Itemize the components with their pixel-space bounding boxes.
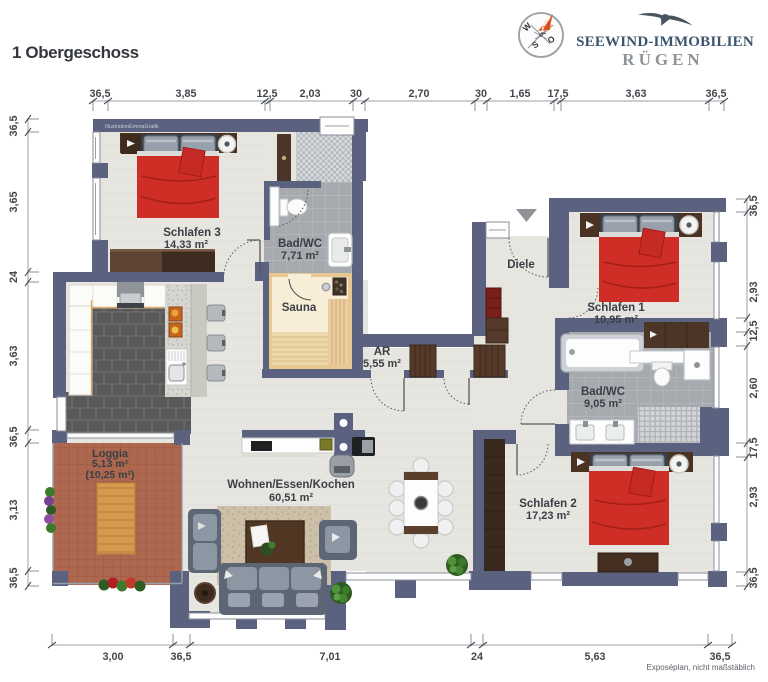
svg-text:36,5: 36,5 — [705, 88, 726, 100]
svg-text:12,5: 12,5 — [748, 320, 760, 341]
svg-text:17,5: 17,5 — [547, 88, 568, 100]
svg-text:36,5: 36,5 — [8, 115, 20, 136]
svg-text:RÜGEN: RÜGEN — [622, 50, 703, 69]
svg-text:7,01: 7,01 — [319, 651, 340, 663]
svg-text:2,60: 2,60 — [748, 377, 760, 398]
svg-text:3,63: 3,63 — [625, 88, 646, 100]
svg-text:Diele: Diele — [507, 259, 535, 271]
svg-text:9,05 m²: 9,05 m² — [584, 398, 622, 410]
svg-text:24: 24 — [8, 271, 20, 283]
svg-text:Schlafen 1: Schlafen 1 — [587, 302, 645, 314]
svg-text:36,5: 36,5 — [89, 88, 110, 100]
svg-text:Sauna: Sauna — [282, 302, 317, 314]
svg-text:3,85: 3,85 — [175, 88, 196, 100]
svg-text:30: 30 — [475, 88, 487, 100]
svg-text:2,03: 2,03 — [299, 88, 320, 100]
svg-text:7,71 m²: 7,71 m² — [281, 250, 319, 262]
svg-text:3,65: 3,65 — [8, 191, 20, 212]
svg-text:Bad/WC: Bad/WC — [278, 238, 322, 250]
svg-text:AR: AR — [374, 346, 391, 358]
svg-text:1 Obergeschoss: 1 Obergeschoss — [12, 43, 139, 62]
svg-text:36,5: 36,5 — [8, 426, 20, 447]
svg-text:36,5: 36,5 — [170, 651, 191, 663]
svg-text:24: 24 — [471, 651, 483, 663]
svg-text:3,13: 3,13 — [8, 499, 20, 520]
svg-text:Exposéplan, nicht maßstäblich: Exposéplan, nicht maßstäblich — [647, 663, 756, 672]
svg-text:12,5: 12,5 — [256, 88, 277, 100]
svg-text:2,93: 2,93 — [748, 486, 760, 507]
svg-text:5,63: 5,63 — [584, 651, 605, 663]
svg-text:Schlafen 3: Schlafen 3 — [163, 227, 221, 239]
svg-text:Schlafen 2: Schlafen 2 — [519, 498, 577, 510]
svg-text:3,00: 3,00 — [102, 651, 123, 663]
svg-text:36,5: 36,5 — [709, 651, 730, 663]
svg-text:36,5: 36,5 — [748, 567, 760, 588]
svg-text:36,5: 36,5 — [748, 195, 760, 216]
svg-text:10,95 m²: 10,95 m² — [594, 314, 638, 326]
svg-text:17,5: 17,5 — [748, 437, 760, 458]
svg-text:3,63: 3,63 — [8, 345, 20, 366]
svg-text:2,70: 2,70 — [408, 88, 429, 100]
svg-text:2,93: 2,93 — [748, 281, 760, 302]
svg-text:Wohnen/Essen/Kochen: Wohnen/Essen/Kochen — [227, 479, 355, 491]
svg-text:Bad/WC: Bad/WC — [581, 386, 625, 398]
svg-text:17,23 m²: 17,23 m² — [526, 510, 570, 522]
svg-text:30: 30 — [350, 88, 362, 100]
svg-text:36,5: 36,5 — [8, 567, 20, 588]
svg-text:IllustrationEmmaGrafik: IllustrationEmmaGrafik — [105, 124, 159, 130]
svg-text:5,55 m²: 5,55 m² — [363, 358, 401, 370]
svg-text:(10,25 m²): (10,25 m²) — [85, 469, 134, 481]
svg-text:1,65: 1,65 — [509, 88, 530, 100]
svg-text:SEEWIND-IMMOBILIEN: SEEWIND-IMMOBILIEN — [576, 34, 754, 50]
svg-text:60,51 m²: 60,51 m² — [269, 492, 313, 504]
